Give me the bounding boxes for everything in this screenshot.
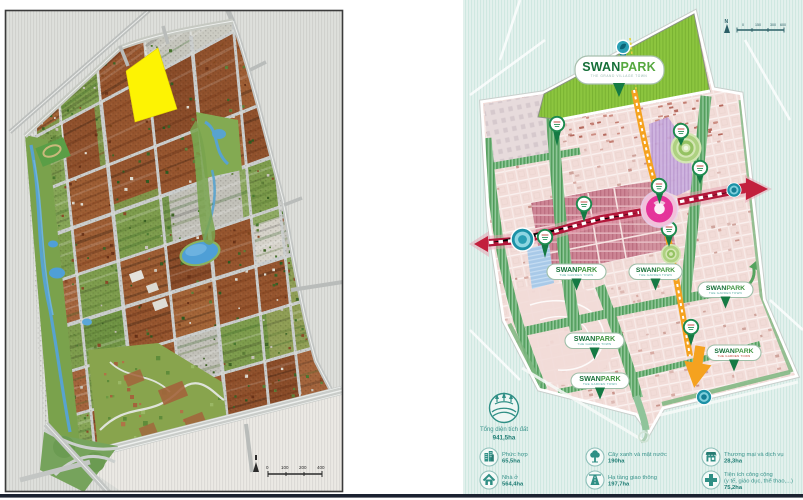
svg-text:564,4ha: 564,4ha [502, 481, 524, 487]
svg-text:197,7ha: 197,7ha [608, 481, 630, 487]
svg-text:THE GARDEN TOWN: THE GARDEN TOWN [709, 291, 742, 295]
svg-text:75,2ha: 75,2ha [724, 485, 743, 491]
svg-text:Tiện ích công cộng: Tiện ích công cộng [724, 472, 773, 478]
svg-text:Cây xanh và mặt nước: Cây xanh và mặt nước [608, 452, 667, 458]
svg-text:200: 200 [299, 465, 307, 470]
svg-text:THE GARDEN TOWN: THE GARDEN TOWN [577, 342, 611, 346]
svg-text:THE GARDEN TOWN: THE GARDEN TOWN [559, 273, 593, 277]
svg-text:65,5ha: 65,5ha [502, 458, 521, 464]
svg-text:SWANPARK: SWANPARK [582, 60, 656, 74]
svg-text:28,3ha: 28,3ha [724, 458, 743, 464]
svg-text:190ha: 190ha [608, 458, 625, 464]
svg-text:N: N [725, 19, 729, 25]
svg-text:600: 600 [780, 23, 786, 27]
svg-text:THE GARDEN TOWN: THE GARDEN TOWN [639, 273, 672, 277]
svg-text:300: 300 [770, 23, 776, 27]
svg-text:THE GRAND VILLAGE TOWN: THE GRAND VILLAGE TOWN [591, 74, 648, 78]
svg-text:Hạ tầng giao thông: Hạ tầng giao thông [608, 475, 657, 481]
svg-text:Phức hợp: Phức hợp [502, 452, 528, 458]
svg-text:Nhà ở: Nhà ở [502, 474, 518, 481]
svg-text:Thương mại và dịch vụ: Thương mại và dịch vụ [724, 452, 784, 458]
svg-text:THE GARDEN TOWN: THE GARDEN TOWN [583, 382, 617, 386]
svg-text:400: 400 [317, 465, 325, 470]
svg-text:Tổng diện tích đất: Tổng diện tích đất [480, 426, 528, 433]
svg-text:0: 0 [742, 23, 744, 27]
svg-text:941,5ha: 941,5ha [493, 435, 516, 442]
svg-text:THE GARDEN TOWN: THE GARDEN TOWN [718, 354, 751, 358]
svg-text:(y tế, giáo dục, thể thao,...): (y tế, giáo dục, thể thao,...) [724, 478, 793, 485]
svg-text:100: 100 [281, 465, 289, 470]
svg-text:150: 150 [755, 23, 761, 27]
